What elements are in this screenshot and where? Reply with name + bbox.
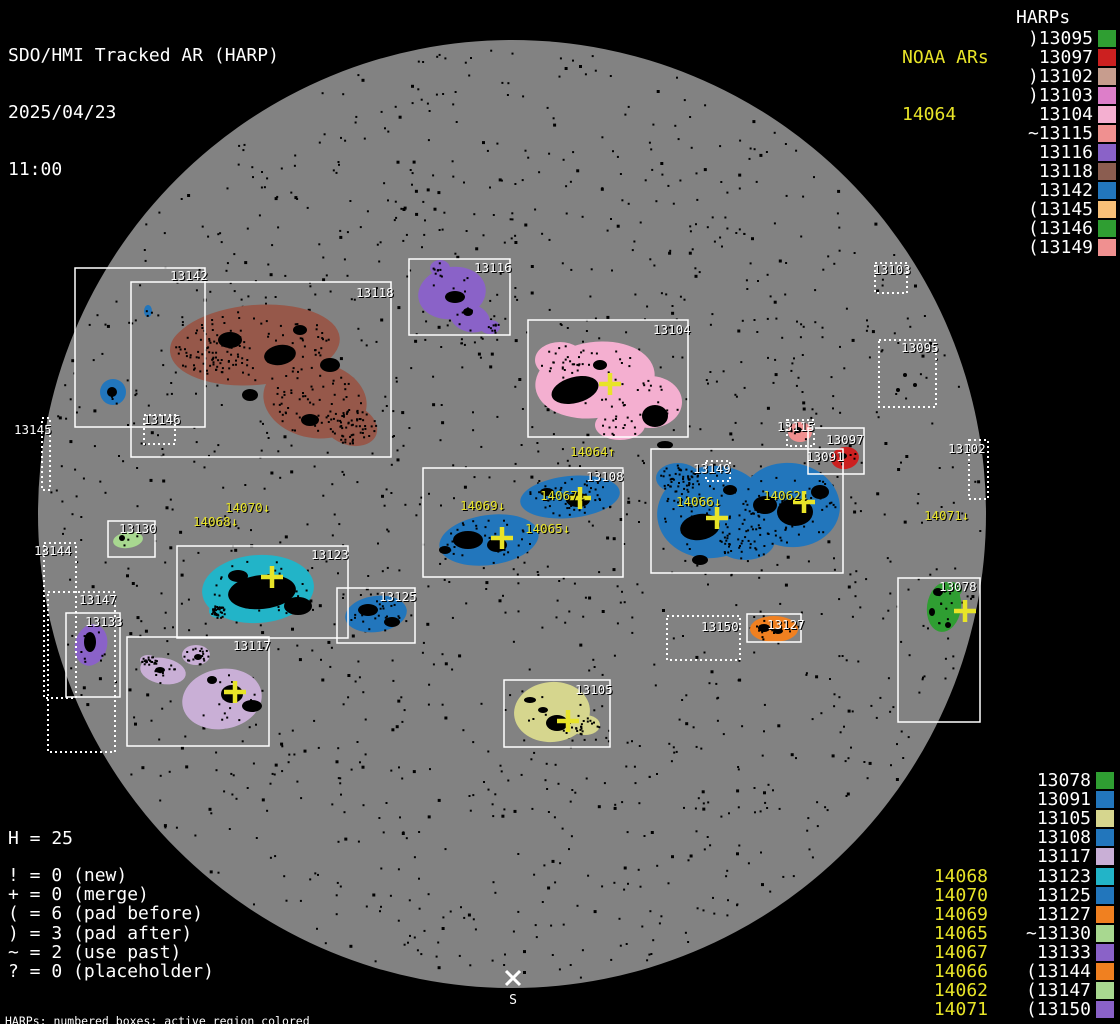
- list-item: 13078: [930, 771, 1114, 790]
- harp-label-13103: 13103: [873, 262, 911, 277]
- harp-label-13117: 13117: [233, 638, 271, 653]
- footer-caption: HARPs: numbered boxes; active region col…: [5, 991, 407, 1024]
- legend-line: ( = 6 (pad before): [8, 904, 214, 923]
- harp-color-swatch: [1096, 810, 1114, 827]
- harp-color-swatch: [1098, 182, 1116, 199]
- list-item: )13102: [1005, 67, 1116, 86]
- harp-label-13123: 13123: [311, 547, 349, 562]
- status-legend: ! = 0 (new)+ = 0 (merge)( = 6 (pad befor…: [8, 866, 214, 981]
- harp-color-swatch: [1096, 963, 1114, 980]
- harp-label-13108: 13108: [586, 469, 624, 484]
- harp-label-13149: 13149: [693, 461, 731, 476]
- noaa-label-14065: 14065↓: [525, 521, 570, 536]
- noaa-ars-panel: NOAA ARs 14064: [902, 10, 989, 162]
- harp-number: 13118: [1005, 162, 1093, 181]
- region-blob-13104: [530, 334, 682, 449]
- noaa-ar-number: 14068: [930, 867, 988, 886]
- noaa-ar-number: 14062: [930, 981, 988, 1000]
- harp-label-13147: 13147: [79, 592, 117, 607]
- list-item: 13104: [1005, 105, 1116, 124]
- harp-number: 13116: [1005, 143, 1093, 162]
- harp-label-13145: 13145: [14, 422, 52, 437]
- harp-label-13125: 13125: [379, 589, 417, 604]
- harp-number: 13091: [988, 790, 1091, 809]
- list-item: 1406713133: [930, 943, 1114, 962]
- harp-label-13091: 13091: [806, 449, 844, 464]
- harps-list: )1309513097)13102)1310313104~13115131161…: [1005, 29, 1116, 257]
- harp-color-swatch: [1096, 1001, 1114, 1018]
- list-item: 13097: [1005, 48, 1116, 67]
- list-item: 14071(13150: [930, 1000, 1114, 1019]
- harp-label-13102: 13102: [948, 441, 986, 456]
- harp-label-13144: 13144: [34, 543, 72, 558]
- list-item: 1407013125: [930, 886, 1114, 905]
- harp-color-swatch: [1098, 144, 1116, 161]
- harp-noaa-bottom-list: 1307813091131051310813117140681312314070…: [930, 771, 1114, 1019]
- harp-label-13142: 13142: [170, 268, 208, 283]
- harp-label-13115: 13115: [777, 419, 815, 434]
- region-blob-13142: [100, 305, 153, 405]
- legend-line: ) = 3 (pad after): [8, 924, 214, 943]
- harp-color-swatch: [1098, 239, 1116, 256]
- noaa-ars-heading: NOAA ARs: [902, 48, 989, 67]
- harp-color-swatch: [1096, 791, 1114, 808]
- harp-label-13095: 13095: [901, 340, 939, 355]
- list-item: 13117: [930, 847, 1114, 866]
- noaa-ar-number: 14065: [930, 924, 988, 943]
- noaa-ar-number: 14070: [930, 886, 988, 905]
- harp-number: 13123: [988, 867, 1091, 886]
- harp-color-swatch: [1098, 163, 1116, 180]
- list-item: 13142: [1005, 181, 1116, 200]
- list-item: 14062(13147: [930, 981, 1114, 1000]
- list-item: (13146: [1005, 219, 1116, 238]
- list-item: 13116: [1005, 143, 1116, 162]
- list-item: 14065~13130: [930, 924, 1114, 943]
- region-blob-13149: [651, 456, 845, 565]
- list-item: 13108: [930, 828, 1114, 847]
- list-item: ~13115: [1005, 124, 1116, 143]
- harp-color-swatch: [1098, 87, 1116, 104]
- harp-count-line: H = 25: [8, 829, 73, 848]
- harp-color-swatch: [1096, 887, 1114, 904]
- harp-number: 13142: [1005, 181, 1093, 200]
- harp-label-13116: 13116: [474, 260, 512, 275]
- harp-color-swatch: [1096, 982, 1114, 999]
- harp-color-swatch: [1098, 201, 1116, 218]
- sdo-hmi-harp-view: 1314213142131181311813146131461314513145…: [0, 0, 1120, 1024]
- harp-number: 13104: [1005, 105, 1093, 124]
- list-item: )13095: [1005, 29, 1116, 48]
- time-label: 11:00: [8, 160, 279, 179]
- region-blob-13117: [138, 645, 267, 735]
- harp-number: (13145: [1005, 200, 1093, 219]
- harp-number: 13108: [988, 828, 1091, 847]
- harp-color-swatch: [1098, 125, 1116, 142]
- date-label: 2025/04/23: [8, 103, 279, 122]
- harp-color-swatch: [1098, 220, 1116, 237]
- noaa-label-14069: 14069↓: [460, 498, 505, 513]
- harp-number: )13095: [1005, 29, 1093, 48]
- harp-number: 13078: [988, 771, 1091, 790]
- region-blob-13118: [167, 298, 383, 454]
- harp-color-swatch: [1098, 49, 1116, 66]
- harp-color-swatch: [1098, 30, 1116, 47]
- harp-label-13130: 13130: [119, 521, 157, 536]
- harp-number: 13117: [988, 847, 1091, 866]
- harp-number: (13144: [988, 962, 1091, 981]
- harp-number: 13097: [1005, 48, 1093, 67]
- harp-number: ~13115: [1005, 124, 1093, 143]
- harp-label-13146: 13146: [143, 412, 181, 427]
- list-item: 13091: [930, 790, 1114, 809]
- harp-color-swatch: [1096, 868, 1114, 885]
- harp-color-swatch: [1096, 772, 1114, 789]
- noaa-ars-value: 14064: [902, 105, 989, 124]
- noaa-ar-number: 14067: [930, 943, 988, 962]
- noaa-label-14071: 14071↓: [924, 508, 969, 523]
- harps-heading: HARPs: [1016, 8, 1070, 27]
- harp-number: 13133: [988, 943, 1091, 962]
- harp-color-swatch: [1096, 925, 1114, 942]
- harp-number: )13103: [1005, 86, 1093, 105]
- harp-label-13078: 13078: [939, 579, 977, 594]
- harp-color-swatch: [1096, 906, 1114, 923]
- app-title: SDO/HMI Tracked AR (HARP): [8, 46, 279, 65]
- list-item: )13103: [1005, 86, 1116, 105]
- harp-color-swatch: [1096, 944, 1114, 961]
- south-label: S: [509, 993, 517, 1008]
- harp-label-13133: 13133: [85, 614, 123, 629]
- harp-number: 13105: [988, 809, 1091, 828]
- harp-color-swatch: [1098, 106, 1116, 123]
- harp-number: 13125: [988, 886, 1091, 905]
- list-item: 13105: [930, 809, 1114, 828]
- region-blob-13123: [200, 551, 316, 627]
- list-item: 14066(13144: [930, 962, 1114, 981]
- noaa-label-14067: 14067↓: [540, 488, 585, 503]
- harp-number: (13149: [1005, 238, 1093, 257]
- south-pole-marker: [506, 971, 520, 985]
- legend-line: ! = 0 (new): [8, 866, 214, 885]
- noaa-ar-number: 14069: [930, 905, 988, 924]
- footer-line-1: HARPs: numbered boxes; active region col…: [5, 1015, 407, 1024]
- harp-number: )13102: [1005, 67, 1093, 86]
- harp-color-swatch: [1096, 829, 1114, 846]
- harp-label-13104: 13104: [653, 322, 691, 337]
- harp-color-swatch: [1098, 68, 1116, 85]
- harp-number: 13127: [988, 905, 1091, 924]
- harp-label-13127: 13127: [767, 617, 805, 632]
- title-block: SDO/HMI Tracked AR (HARP) 2025/04/23 11:…: [8, 8, 279, 217]
- legend-line: ? = 0 (placeholder): [8, 962, 214, 981]
- legend-line: ~ = 2 (use past): [8, 943, 214, 962]
- harp-number: (13147: [988, 981, 1091, 1000]
- harp-label-13097: 13097: [826, 432, 864, 447]
- harp-number: (13146: [1005, 219, 1093, 238]
- noaa-label-14068: 14068↓: [193, 514, 238, 529]
- active-regions: [70, 260, 964, 745]
- list-item: (13145: [1005, 200, 1116, 219]
- noaa-label-14064: 14064↑: [570, 444, 615, 459]
- noaa-ar-number: 14071: [930, 1000, 988, 1019]
- harp-label-13118: 13118: [356, 285, 394, 300]
- harp-label-13150: 13150: [701, 619, 739, 634]
- list-item: (13149: [1005, 238, 1116, 257]
- noaa-label-14062: 14062↓: [763, 488, 808, 503]
- list-item: 13118: [1005, 162, 1116, 181]
- list-item: 1406813123: [930, 866, 1114, 885]
- harp-number: ~13130: [988, 924, 1091, 943]
- harp-label-13105: 13105: [575, 682, 613, 697]
- noaa-ar-number: 14066: [930, 962, 988, 981]
- harp-color-swatch: [1096, 848, 1114, 865]
- noaa-label-14070: 14070↓: [225, 500, 270, 515]
- legend-line: + = 0 (merge): [8, 885, 214, 904]
- harp-number: (13150: [988, 1000, 1091, 1019]
- list-item: 1406913127: [930, 905, 1114, 924]
- noaa-label-14066: 14066↓: [676, 494, 721, 509]
